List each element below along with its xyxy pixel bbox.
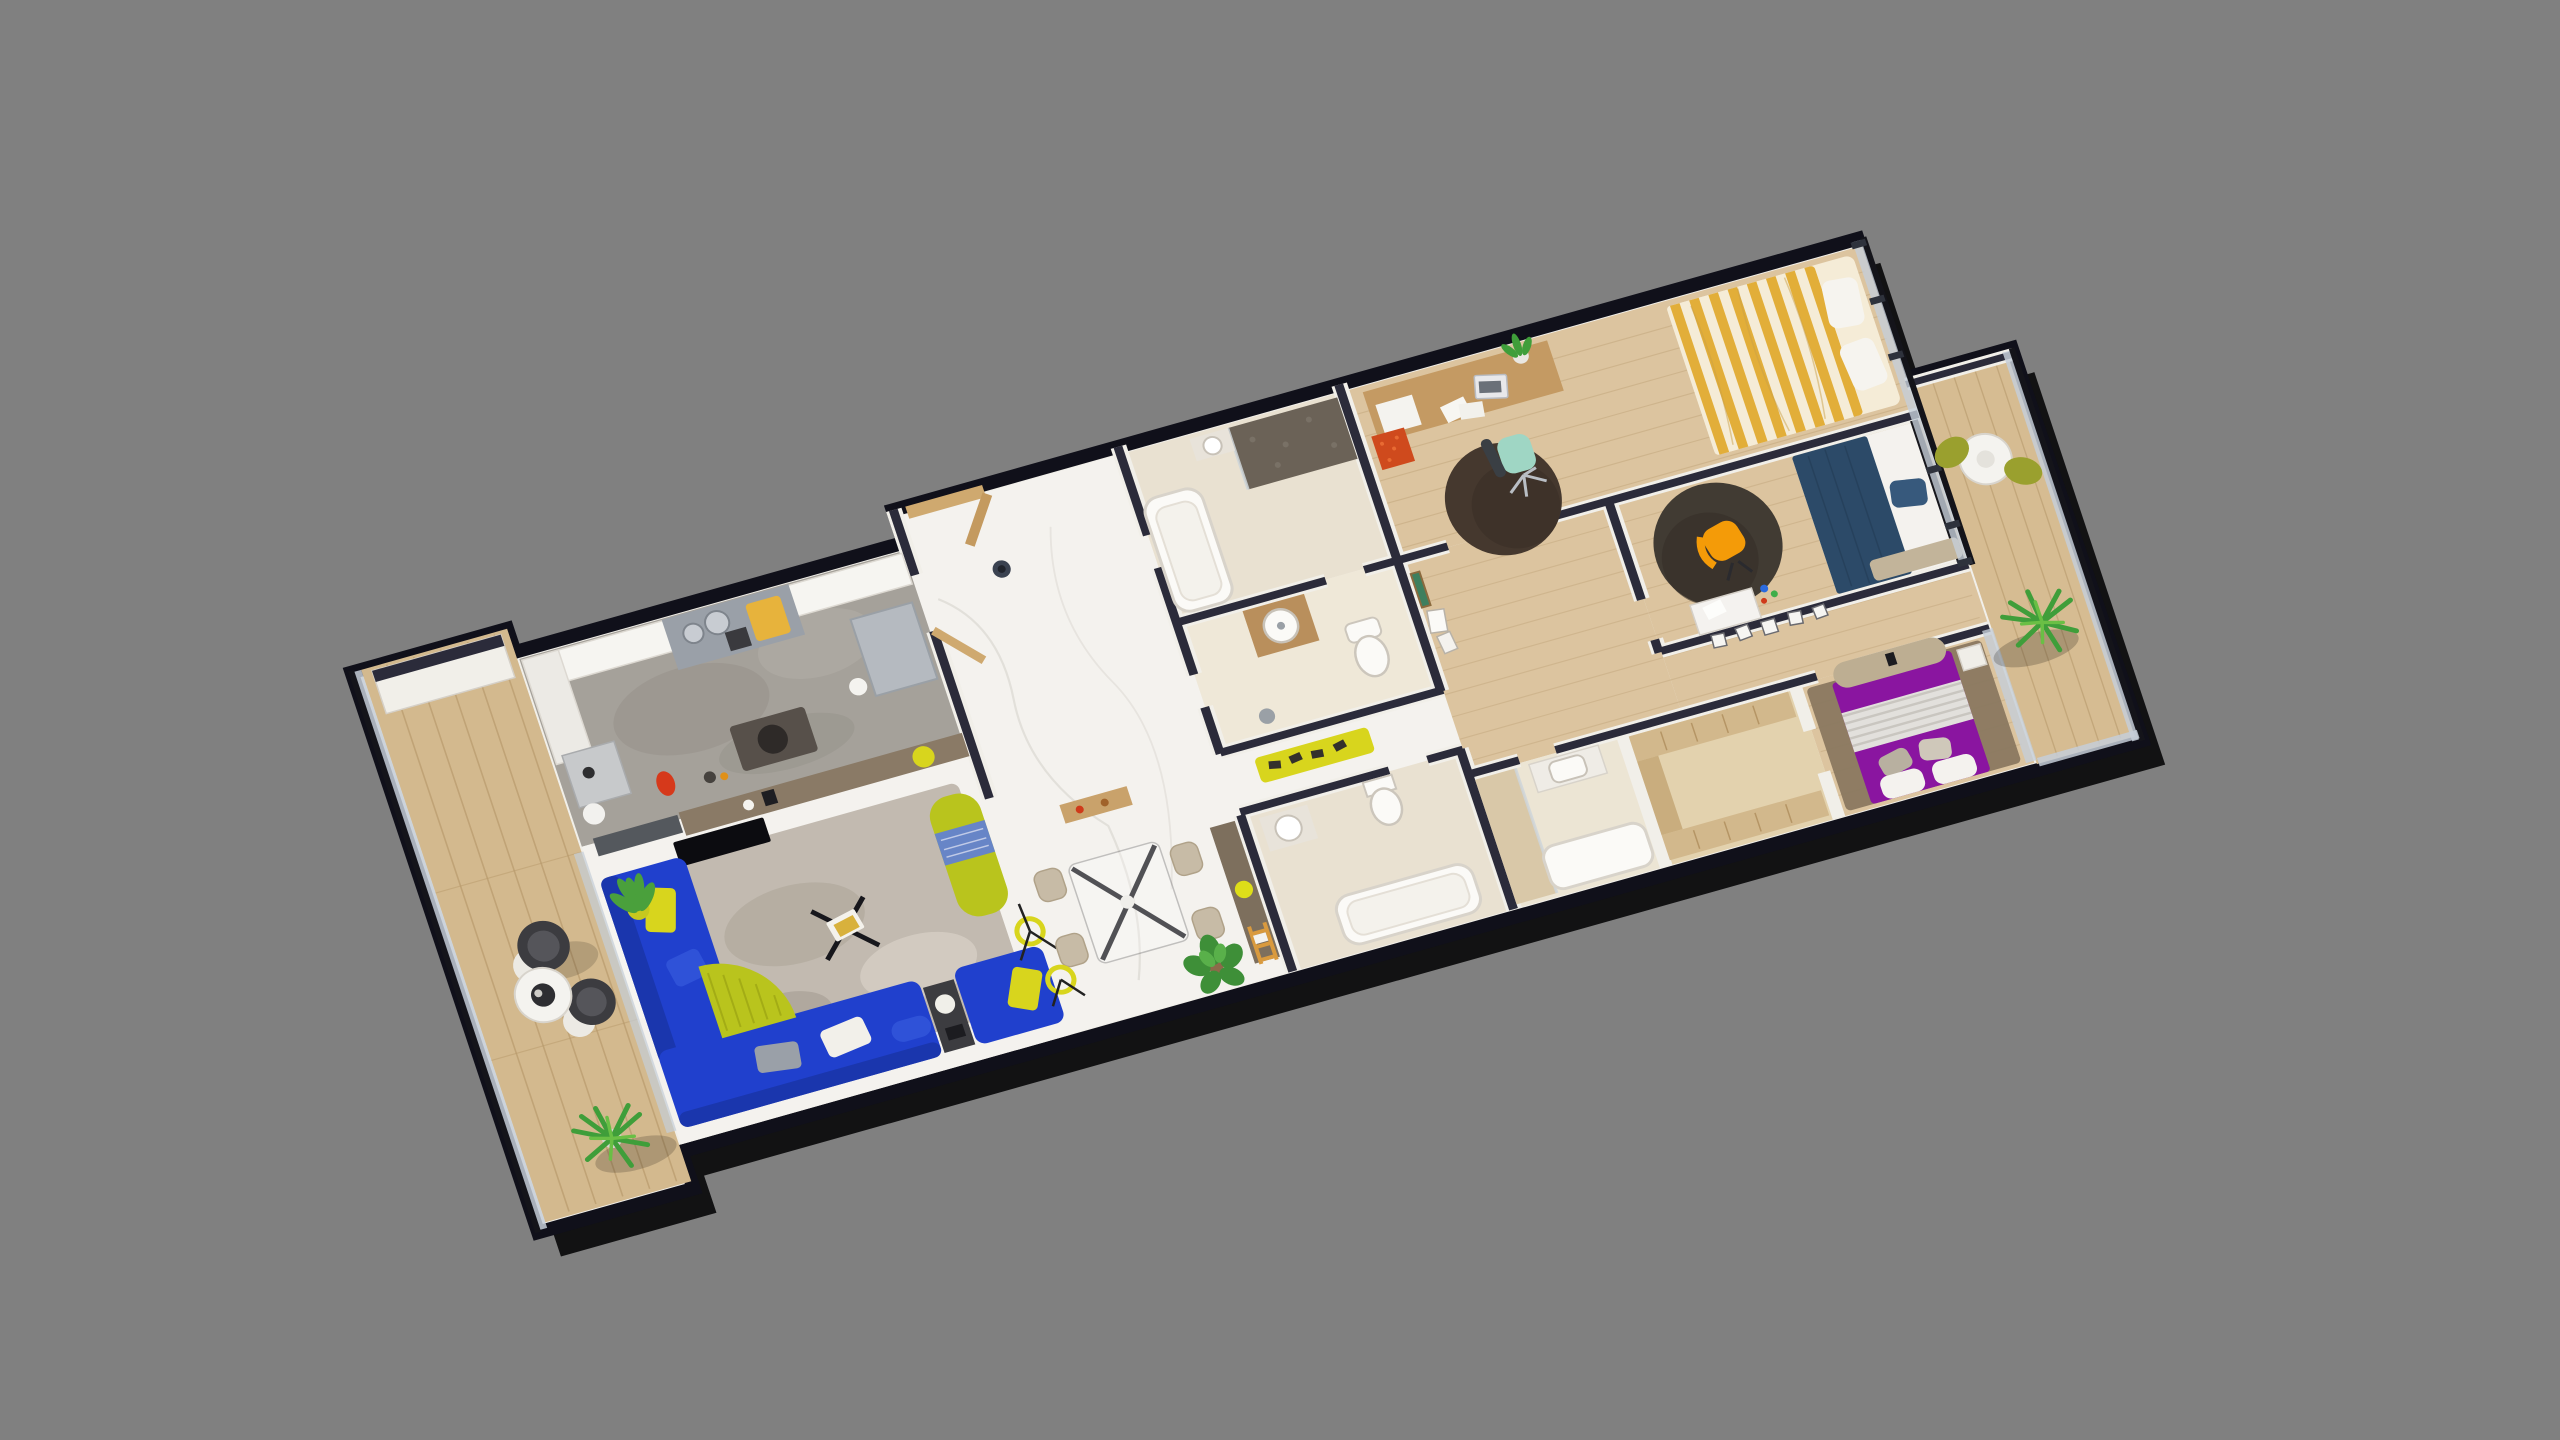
leaning-frame — [1427, 609, 1448, 633]
navy-pillow — [1889, 478, 1929, 509]
floorplan-svg — [0, 0, 2560, 1440]
patterned-pillow — [1918, 737, 1953, 762]
yellow-pillow — [1007, 966, 1043, 1011]
floorplan-render-stage — [0, 0, 2560, 1440]
